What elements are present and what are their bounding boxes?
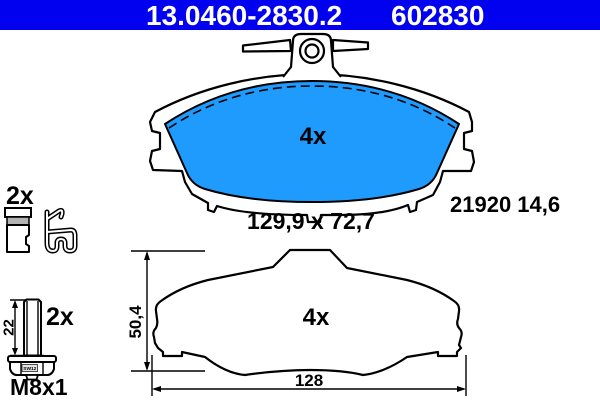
width-dim-text: 128 [295,371,323,390]
accessory-kit-drawing [0,180,110,260]
left-wing-spring [243,40,291,52]
brake-pad-technical-diagram: 13.0460-2830.2 602830 4x 129,9 x 72,7 21… [0,0,600,400]
arrow-up [12,300,18,308]
arrow-down [144,362,150,371]
side-view-quantity: 4x [303,304,330,331]
bolt-quantity-label: 2x [46,303,74,332]
bolt-thread-label: M8x1 [10,374,68,400]
bolt-length-text: 22 [1,319,18,336]
sleeve-band [7,217,29,225]
reference-number: 602830 [391,0,484,30]
arrow-down [12,348,18,356]
pad-top-view-drawing: 4x [140,30,485,230]
head-size-text: SW12 [23,366,36,372]
height-dim-text: 50,4 [126,305,145,339]
wva-number-label: 21920 14,6 [450,192,560,218]
right-wing-spring [333,40,368,51]
pad-size-label: 129,9 x 72,7 [231,208,391,235]
sleeve-cap [5,208,31,217]
top-view-quantity: 4x [300,123,327,150]
arrow-up [144,251,150,260]
title-bar: 13.0460-2830.2 602830 [0,0,600,30]
arrow-right [457,386,466,392]
pin-hole [306,45,319,58]
part-number: 13.0460-2830.2 [146,0,342,30]
pad-side-view-drawing: 50,4 128 4x [125,240,480,400]
spring-clip [47,210,75,251]
arrow-left [152,386,161,392]
sleeve-body [7,225,29,252]
